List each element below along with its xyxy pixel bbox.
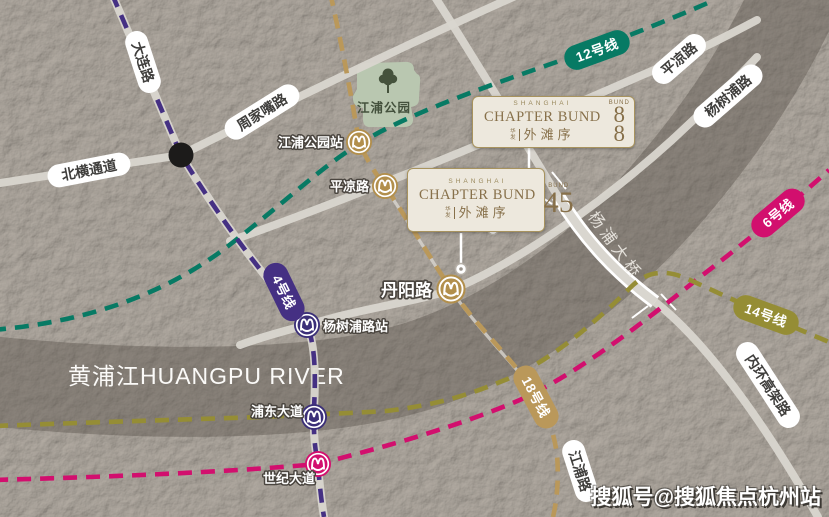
watermark: 搜狐号@搜狐焦点杭州站 bbox=[591, 481, 821, 511]
svg-text:丹阳路: 丹阳路 bbox=[381, 280, 433, 300]
card-brand-top: SHANGHAI bbox=[448, 178, 506, 186]
card-brand-top: SHANGHAI bbox=[513, 100, 571, 108]
card-bund-number: BUND 88 bbox=[609, 100, 630, 143]
project-card-bund-88[interactable]: SHANGHAI CHAPTER BUND 华发 外滩序 BUND 88 bbox=[472, 96, 635, 148]
card-brand-prefix: 华发 bbox=[445, 207, 455, 219]
park-label: 江浦公园 bbox=[357, 100, 411, 115]
map-svg: 黄浦江HUANGPU RIVER 江浦公园 杨浦大桥 bbox=[0, 0, 829, 517]
project-card-bund-45[interactable]: SHANGHAI CHAPTER BUND 华发 外滩序 BUND 45 bbox=[407, 168, 545, 232]
card-brand-main: CHAPTER BUND bbox=[484, 108, 601, 126]
svg-text:杨树浦路站: 杨树浦路站 bbox=[323, 319, 388, 334]
card-brand-cn: 外滩序 bbox=[524, 127, 575, 143]
card-brand-prefix: 华发 bbox=[510, 129, 520, 141]
card-bund-number: BUND 45 bbox=[544, 183, 574, 216]
svg-text:平凉路: 平凉路 bbox=[330, 179, 370, 194]
map-canvas[interactable]: 黄浦江HUANGPU RIVER 江浦公园 杨浦大桥 bbox=[0, 0, 829, 517]
jiangpu-park-area: 江浦公园 bbox=[353, 62, 420, 127]
river-label: 黄浦江HUANGPU RIVER bbox=[68, 363, 345, 389]
card-brand-cn: 外滩序 bbox=[459, 205, 510, 221]
card-brand-main: CHAPTER BUND bbox=[419, 186, 536, 204]
svg-text:江浦公园站: 江浦公园站 bbox=[278, 135, 343, 150]
svg-text:世纪大道: 世纪大道 bbox=[263, 471, 315, 486]
svg-text:浦东大道: 浦东大道 bbox=[251, 404, 303, 419]
interchange-dot bbox=[169, 143, 194, 168]
